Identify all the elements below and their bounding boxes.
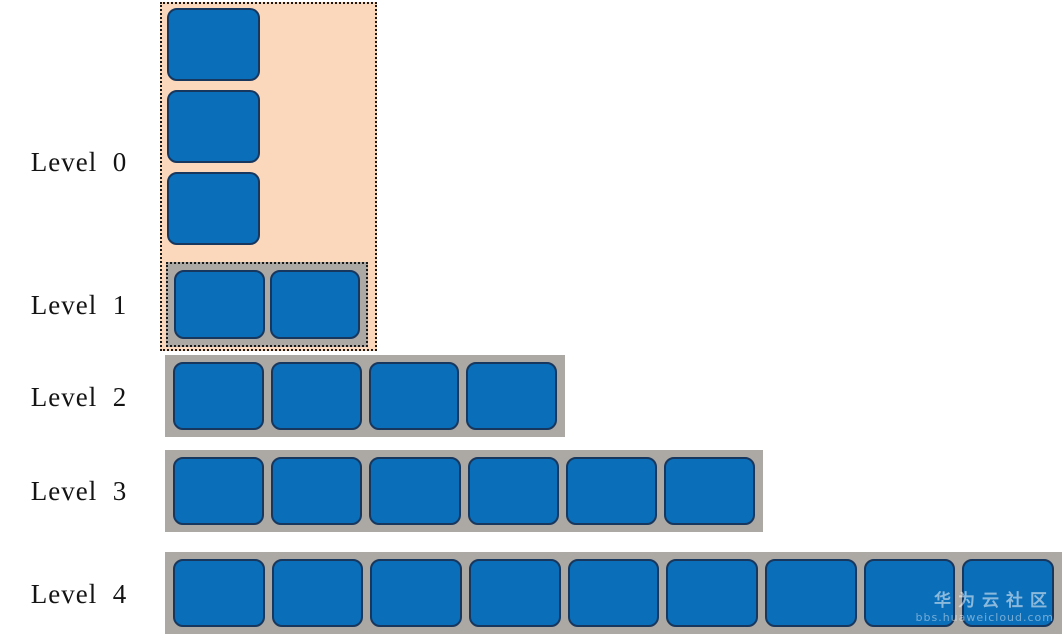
levels-diagram: Level 0 Level 1 Level 2 Level 3 Level 4 … xyxy=(0,0,1062,636)
block xyxy=(468,457,559,525)
level-1-container xyxy=(166,262,368,347)
level-0-1-group-box xyxy=(160,2,377,351)
block xyxy=(962,559,1054,627)
block xyxy=(469,559,561,627)
block xyxy=(566,457,657,525)
level-0-block-stack xyxy=(167,8,260,245)
block xyxy=(370,559,462,627)
block xyxy=(864,559,956,627)
block xyxy=(174,270,265,339)
block xyxy=(466,362,557,430)
block xyxy=(271,457,362,525)
block xyxy=(167,172,260,245)
level-2-label: Level 2 xyxy=(8,382,150,412)
block xyxy=(167,8,260,81)
block xyxy=(173,457,264,525)
block xyxy=(666,559,758,627)
level-4-label: Level 4 xyxy=(8,579,150,609)
block xyxy=(765,559,857,627)
level-3-label: Level 3 xyxy=(8,476,150,506)
block xyxy=(167,90,260,163)
level-1-label: Level 1 xyxy=(8,290,150,320)
level-2-row xyxy=(165,355,565,437)
block xyxy=(271,362,362,430)
block xyxy=(272,559,364,627)
level-3-row xyxy=(165,450,763,532)
level-4-row xyxy=(165,552,1062,634)
block xyxy=(664,457,755,525)
block xyxy=(369,457,460,525)
block xyxy=(568,559,660,627)
block xyxy=(369,362,460,430)
block xyxy=(173,362,264,430)
level-0-label: Level 0 xyxy=(8,147,150,177)
block xyxy=(173,559,265,627)
block xyxy=(270,270,361,339)
